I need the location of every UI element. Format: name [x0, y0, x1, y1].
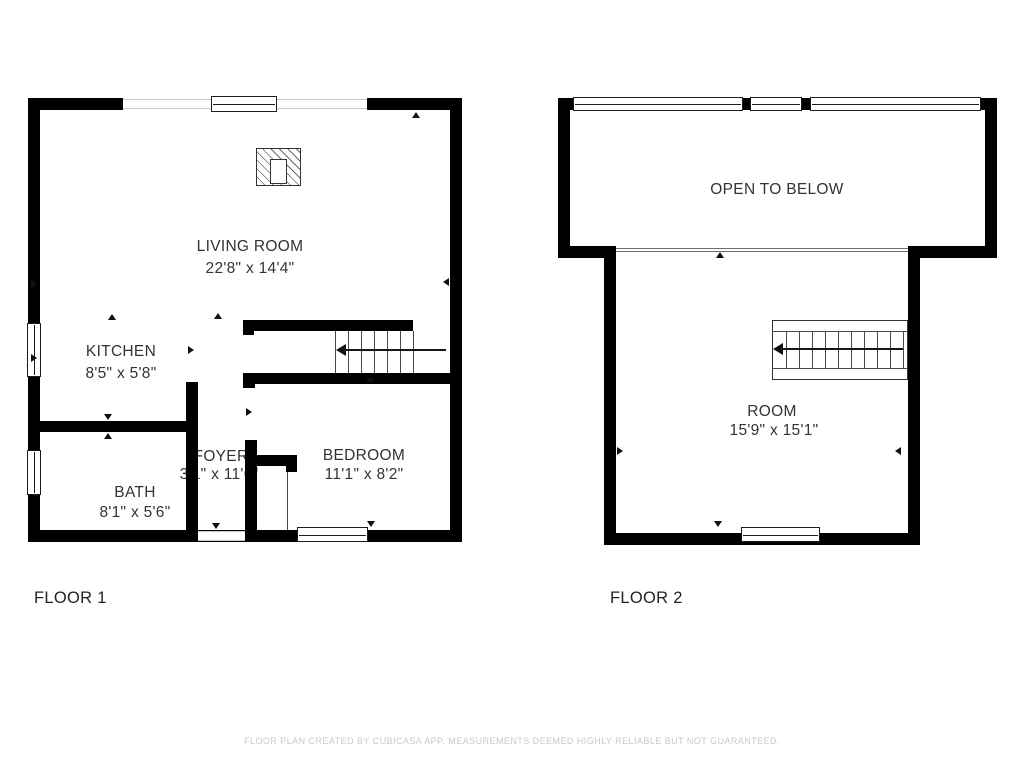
room-label-foyer: FOYER	[194, 448, 249, 466]
wall	[243, 373, 462, 384]
door-marker-icon	[895, 447, 901, 455]
room-dims-living-room: 22'8" x 14'4"	[206, 260, 295, 278]
door-marker-icon	[104, 433, 112, 439]
floor2-label: FLOOR 2	[610, 589, 683, 608]
door-marker-icon	[367, 521, 375, 527]
wall	[28, 98, 123, 110]
door-marker-icon	[31, 280, 37, 288]
door-marker-icon	[366, 376, 374, 382]
staircase-treads	[335, 331, 415, 373]
disclaimer-text: FLOOR PLAN CREATED BY CUBICASA APP. MEAS…	[244, 736, 780, 746]
wall	[450, 98, 462, 542]
door-marker-icon	[716, 252, 724, 258]
wall	[186, 382, 198, 542]
room-dims-bedroom: 11'1" x 8'2"	[325, 466, 404, 484]
wall	[604, 246, 616, 545]
closet-divider-line	[287, 472, 288, 530]
firebox-icon	[270, 159, 287, 184]
room-label-room: ROOM	[747, 403, 796, 421]
staircase-line	[772, 368, 908, 369]
window	[211, 96, 277, 112]
window	[810, 97, 981, 111]
door-marker-icon	[212, 523, 220, 529]
wall	[243, 320, 254, 335]
window	[27, 450, 41, 495]
door-marker-icon	[412, 112, 420, 118]
door-marker-icon	[246, 408, 252, 416]
door-marker-icon	[31, 354, 37, 362]
wall	[243, 373, 255, 388]
room-label-bedroom: BEDROOM	[323, 447, 405, 465]
window	[750, 97, 802, 111]
wall	[243, 320, 413, 331]
room-label-open-to-below: OPEN TO BELOW	[710, 181, 843, 199]
door-marker-icon	[617, 447, 623, 455]
stairs-arrowhead-icon	[336, 344, 346, 356]
door-marker-icon	[108, 314, 116, 320]
window	[741, 527, 820, 542]
fireplace-icon	[256, 148, 301, 186]
window	[297, 527, 368, 542]
room-label-kitchen: KITCHEN	[86, 343, 156, 361]
window	[573, 97, 743, 111]
door-marker-icon	[188, 346, 194, 354]
wall	[28, 421, 198, 432]
stairs-arrowhead-icon	[773, 343, 783, 355]
door-marker-icon	[714, 521, 722, 527]
wall	[558, 98, 570, 258]
room-label-bath: BATH	[114, 484, 155, 502]
room-label-living-room: LIVING ROOM	[197, 238, 304, 256]
room-dims-bath: 8'1" x 5'6"	[99, 504, 170, 522]
door-opening	[198, 531, 245, 541]
floor1-label: FLOOR 1	[34, 589, 107, 608]
door-marker-icon	[214, 313, 222, 319]
wall	[985, 98, 997, 258]
room-dims-room: 15'9" x 15'1"	[730, 422, 819, 440]
staircase-treads	[786, 332, 907, 368]
door-marker-icon	[443, 278, 449, 286]
window	[27, 323, 41, 377]
stairs-arrow	[346, 349, 446, 351]
wall	[908, 246, 920, 545]
railing-line	[616, 248, 908, 252]
stairs-arrow	[783, 348, 903, 350]
wall	[367, 98, 462, 110]
wall	[286, 455, 297, 472]
room-dims-kitchen: 8'5" x 5'8"	[85, 365, 156, 383]
floor-plan-canvas: LIVING ROOM 22'8" x 14'4" KITCHEN 8'5" x…	[0, 0, 1024, 768]
door-marker-icon	[104, 414, 112, 420]
wall	[908, 246, 997, 258]
